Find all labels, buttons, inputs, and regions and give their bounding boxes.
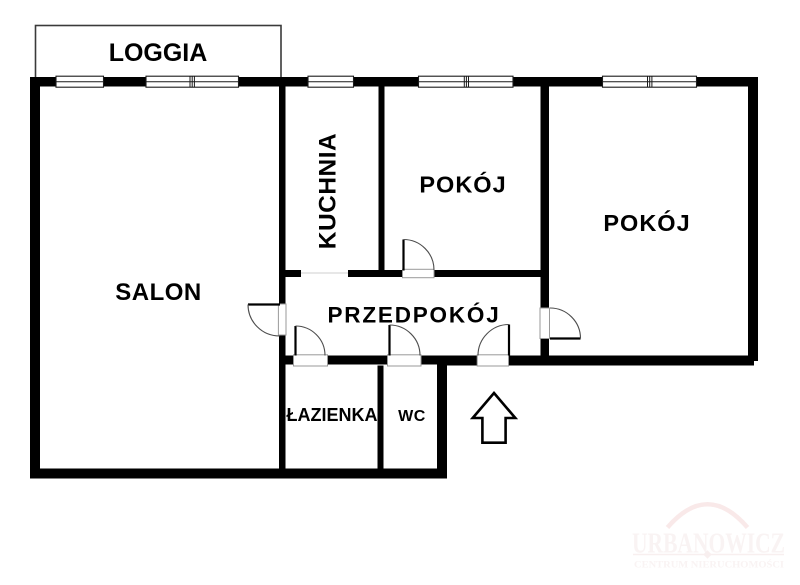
svg-text:PRZEDPOKÓJ: PRZEDPOKÓJ xyxy=(327,303,500,328)
svg-text:WC: WC xyxy=(398,408,426,425)
svg-text:POKÓJ: POKÓJ xyxy=(419,171,506,198)
svg-text:POKÓJ: POKÓJ xyxy=(603,209,690,236)
svg-text:CENTRUM NIERUCHOMOŚCI: CENTRUM NIERUCHOMOŚCI xyxy=(634,559,784,571)
svg-text:SALON: SALON xyxy=(115,279,202,306)
svg-text:LOGGIA: LOGGIA xyxy=(109,39,208,67)
svg-text:ŁAZIENKA: ŁAZIENKA xyxy=(287,405,378,425)
svg-text:KUCHNIA: KUCHNIA xyxy=(315,133,342,249)
